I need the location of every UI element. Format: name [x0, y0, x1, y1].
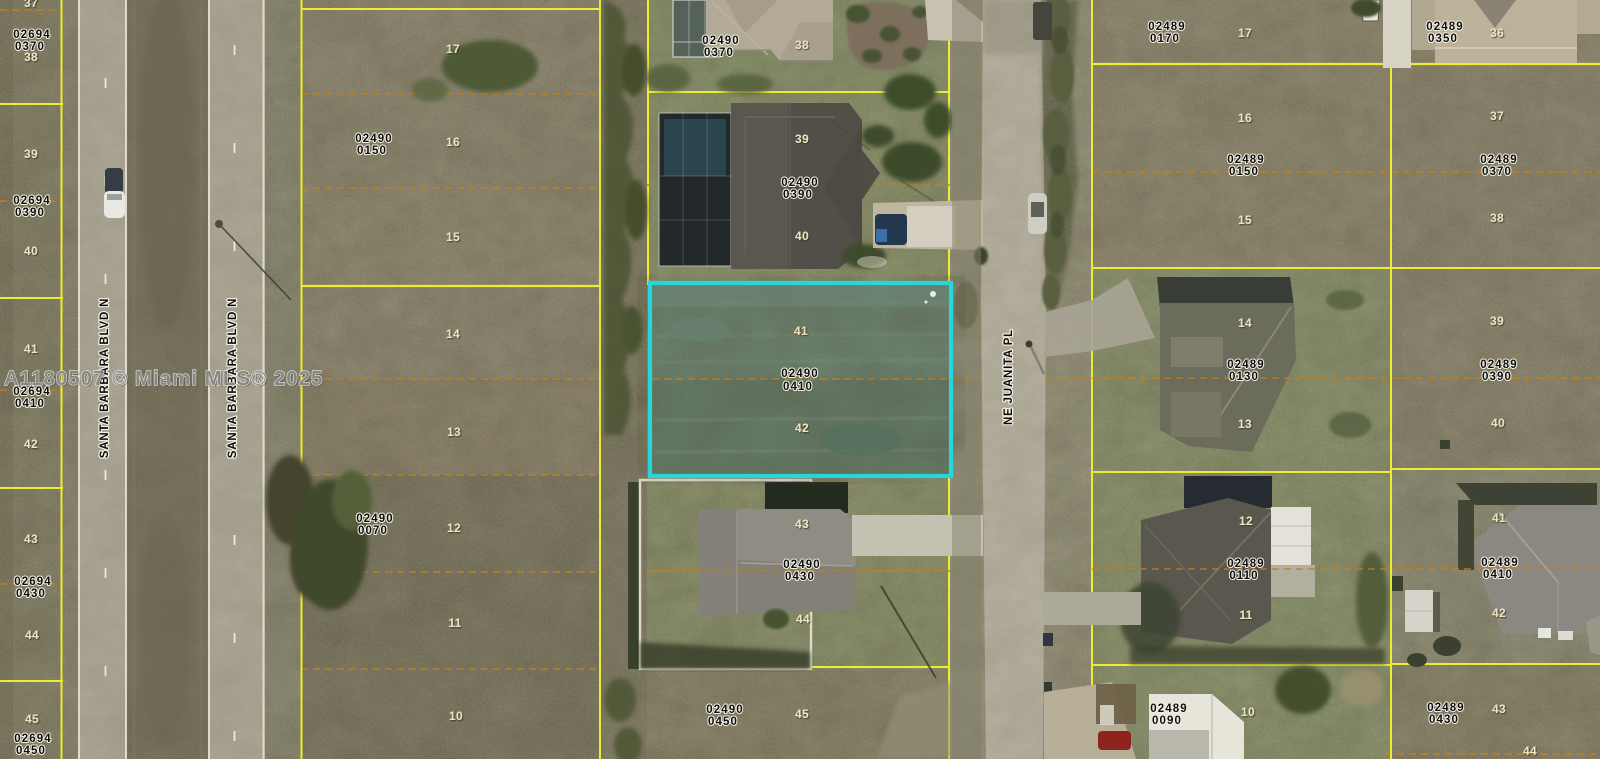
svg-text:11: 11: [1239, 608, 1252, 622]
svg-text:14: 14: [446, 327, 460, 341]
svg-text:37: 37: [24, 0, 38, 10]
svg-text:12: 12: [1239, 514, 1253, 528]
svg-text:13: 13: [1238, 417, 1252, 431]
svg-text:12: 12: [447, 521, 461, 535]
svg-text:10: 10: [449, 709, 463, 723]
svg-text:44: 44: [1523, 744, 1537, 758]
svg-text:14: 14: [1238, 316, 1252, 330]
svg-text:37: 37: [1490, 109, 1504, 123]
svg-text:40: 40: [795, 229, 809, 243]
svg-text:11: 11: [448, 616, 461, 630]
svg-text:16: 16: [1238, 111, 1252, 125]
svg-text:45: 45: [795, 707, 809, 721]
svg-text:42: 42: [795, 421, 809, 435]
svg-text:40: 40: [24, 244, 38, 258]
svg-text:44: 44: [796, 612, 810, 626]
svg-text:38: 38: [1490, 211, 1504, 225]
svg-text:41: 41: [794, 324, 808, 338]
svg-text:44: 44: [25, 628, 39, 642]
svg-text:38: 38: [24, 50, 38, 64]
svg-text:NE JUANITA PL: NE JUANITA PL: [1003, 329, 1015, 425]
svg-text:39: 39: [1490, 314, 1504, 328]
svg-text:17: 17: [1238, 26, 1252, 40]
svg-text:A1180507 © Miami MLS® 2025: A1180507 © Miami MLS® 2025: [4, 367, 323, 390]
svg-text:13: 13: [447, 425, 461, 439]
svg-text:42: 42: [1492, 606, 1506, 620]
svg-text:43: 43: [1492, 702, 1506, 716]
svg-text:43: 43: [24, 532, 38, 546]
svg-text:40: 40: [1491, 416, 1505, 430]
svg-text:17: 17: [446, 42, 460, 56]
svg-text:41: 41: [1492, 511, 1506, 525]
svg-text:39: 39: [24, 147, 38, 161]
svg-text:10: 10: [1241, 705, 1255, 719]
svg-text:15: 15: [446, 230, 460, 244]
svg-text:45: 45: [25, 712, 39, 726]
svg-text:42: 42: [24, 437, 38, 451]
svg-text:43: 43: [795, 517, 809, 531]
svg-text:15: 15: [1238, 213, 1252, 227]
svg-text:36: 36: [1490, 26, 1504, 40]
svg-text:16: 16: [446, 135, 460, 149]
svg-text:41: 41: [24, 342, 38, 356]
svg-text:39: 39: [795, 132, 809, 146]
svg-text:38: 38: [795, 38, 809, 52]
